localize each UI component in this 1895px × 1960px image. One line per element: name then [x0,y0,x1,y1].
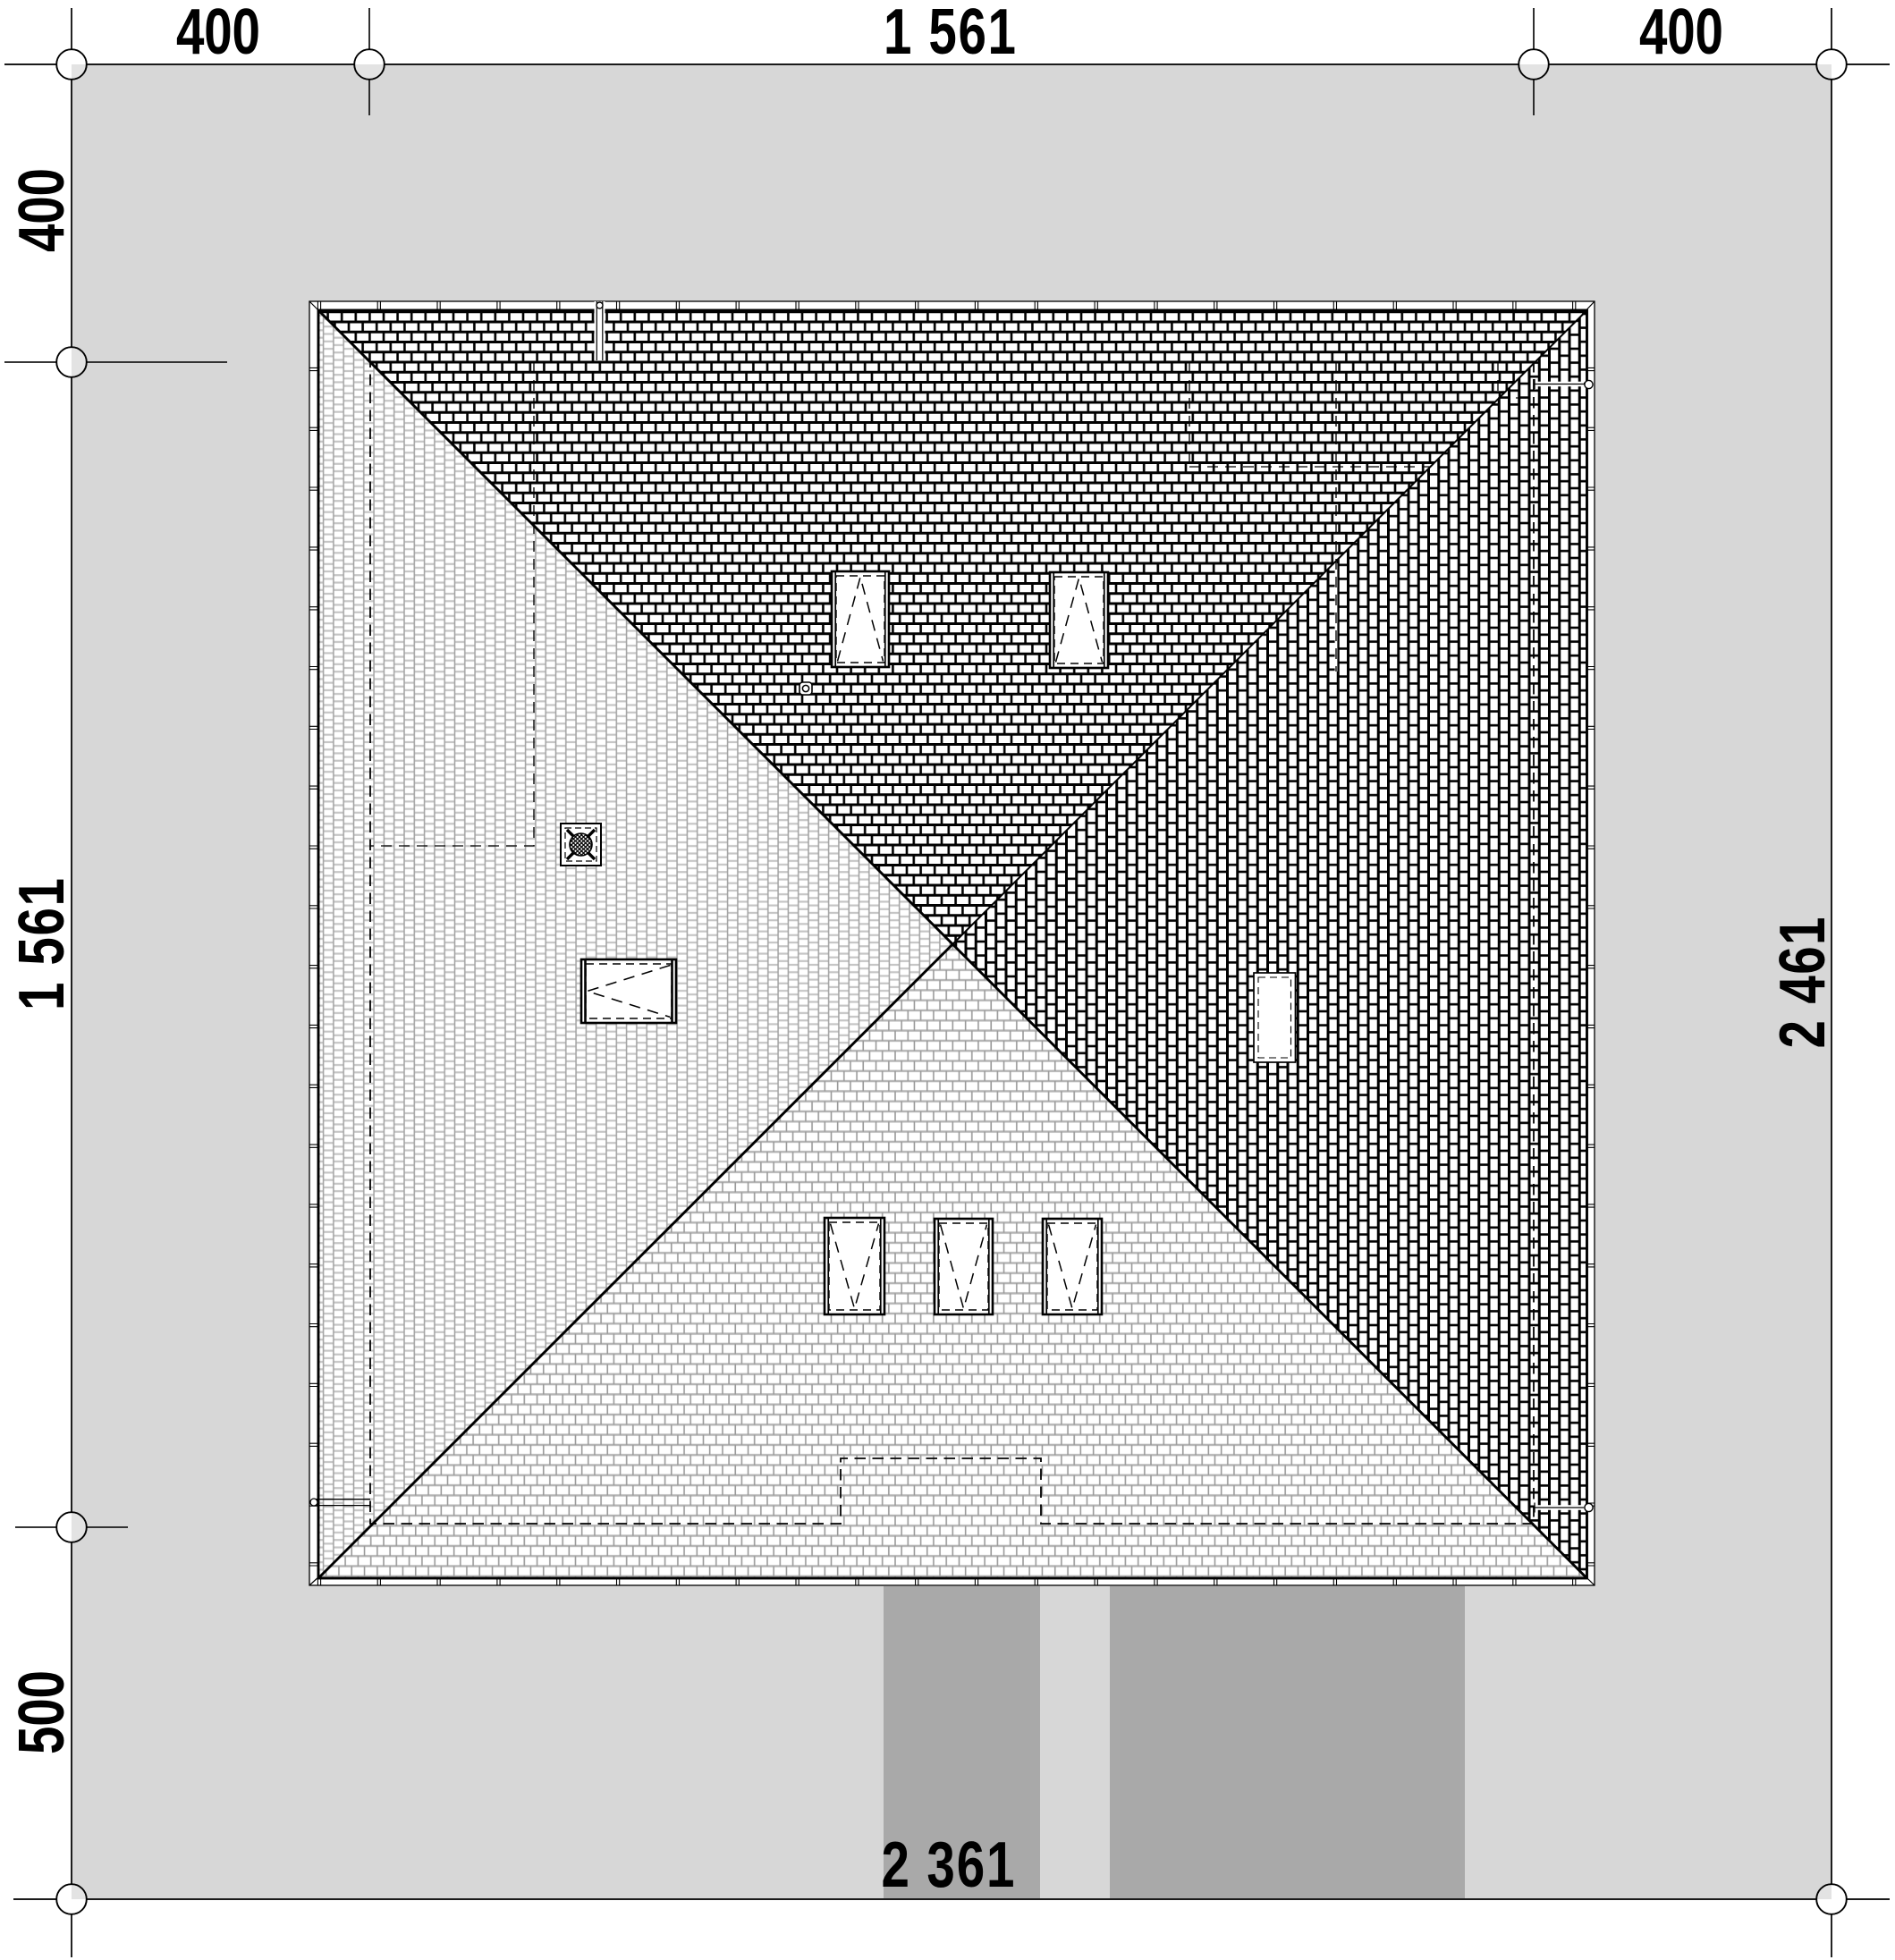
svg-text:2 461: 2 461 [1765,917,1838,1048]
svg-text:400: 400 [4,168,77,252]
svg-text:400: 400 [176,0,260,68]
svg-text:400: 400 [1639,0,1723,68]
svg-text:500: 500 [4,1670,77,1754]
svg-text:1 561: 1 561 [4,878,77,1010]
svg-text:2 361: 2 361 [882,1828,1015,1900]
svg-text:1 561: 1 561 [884,0,1016,68]
